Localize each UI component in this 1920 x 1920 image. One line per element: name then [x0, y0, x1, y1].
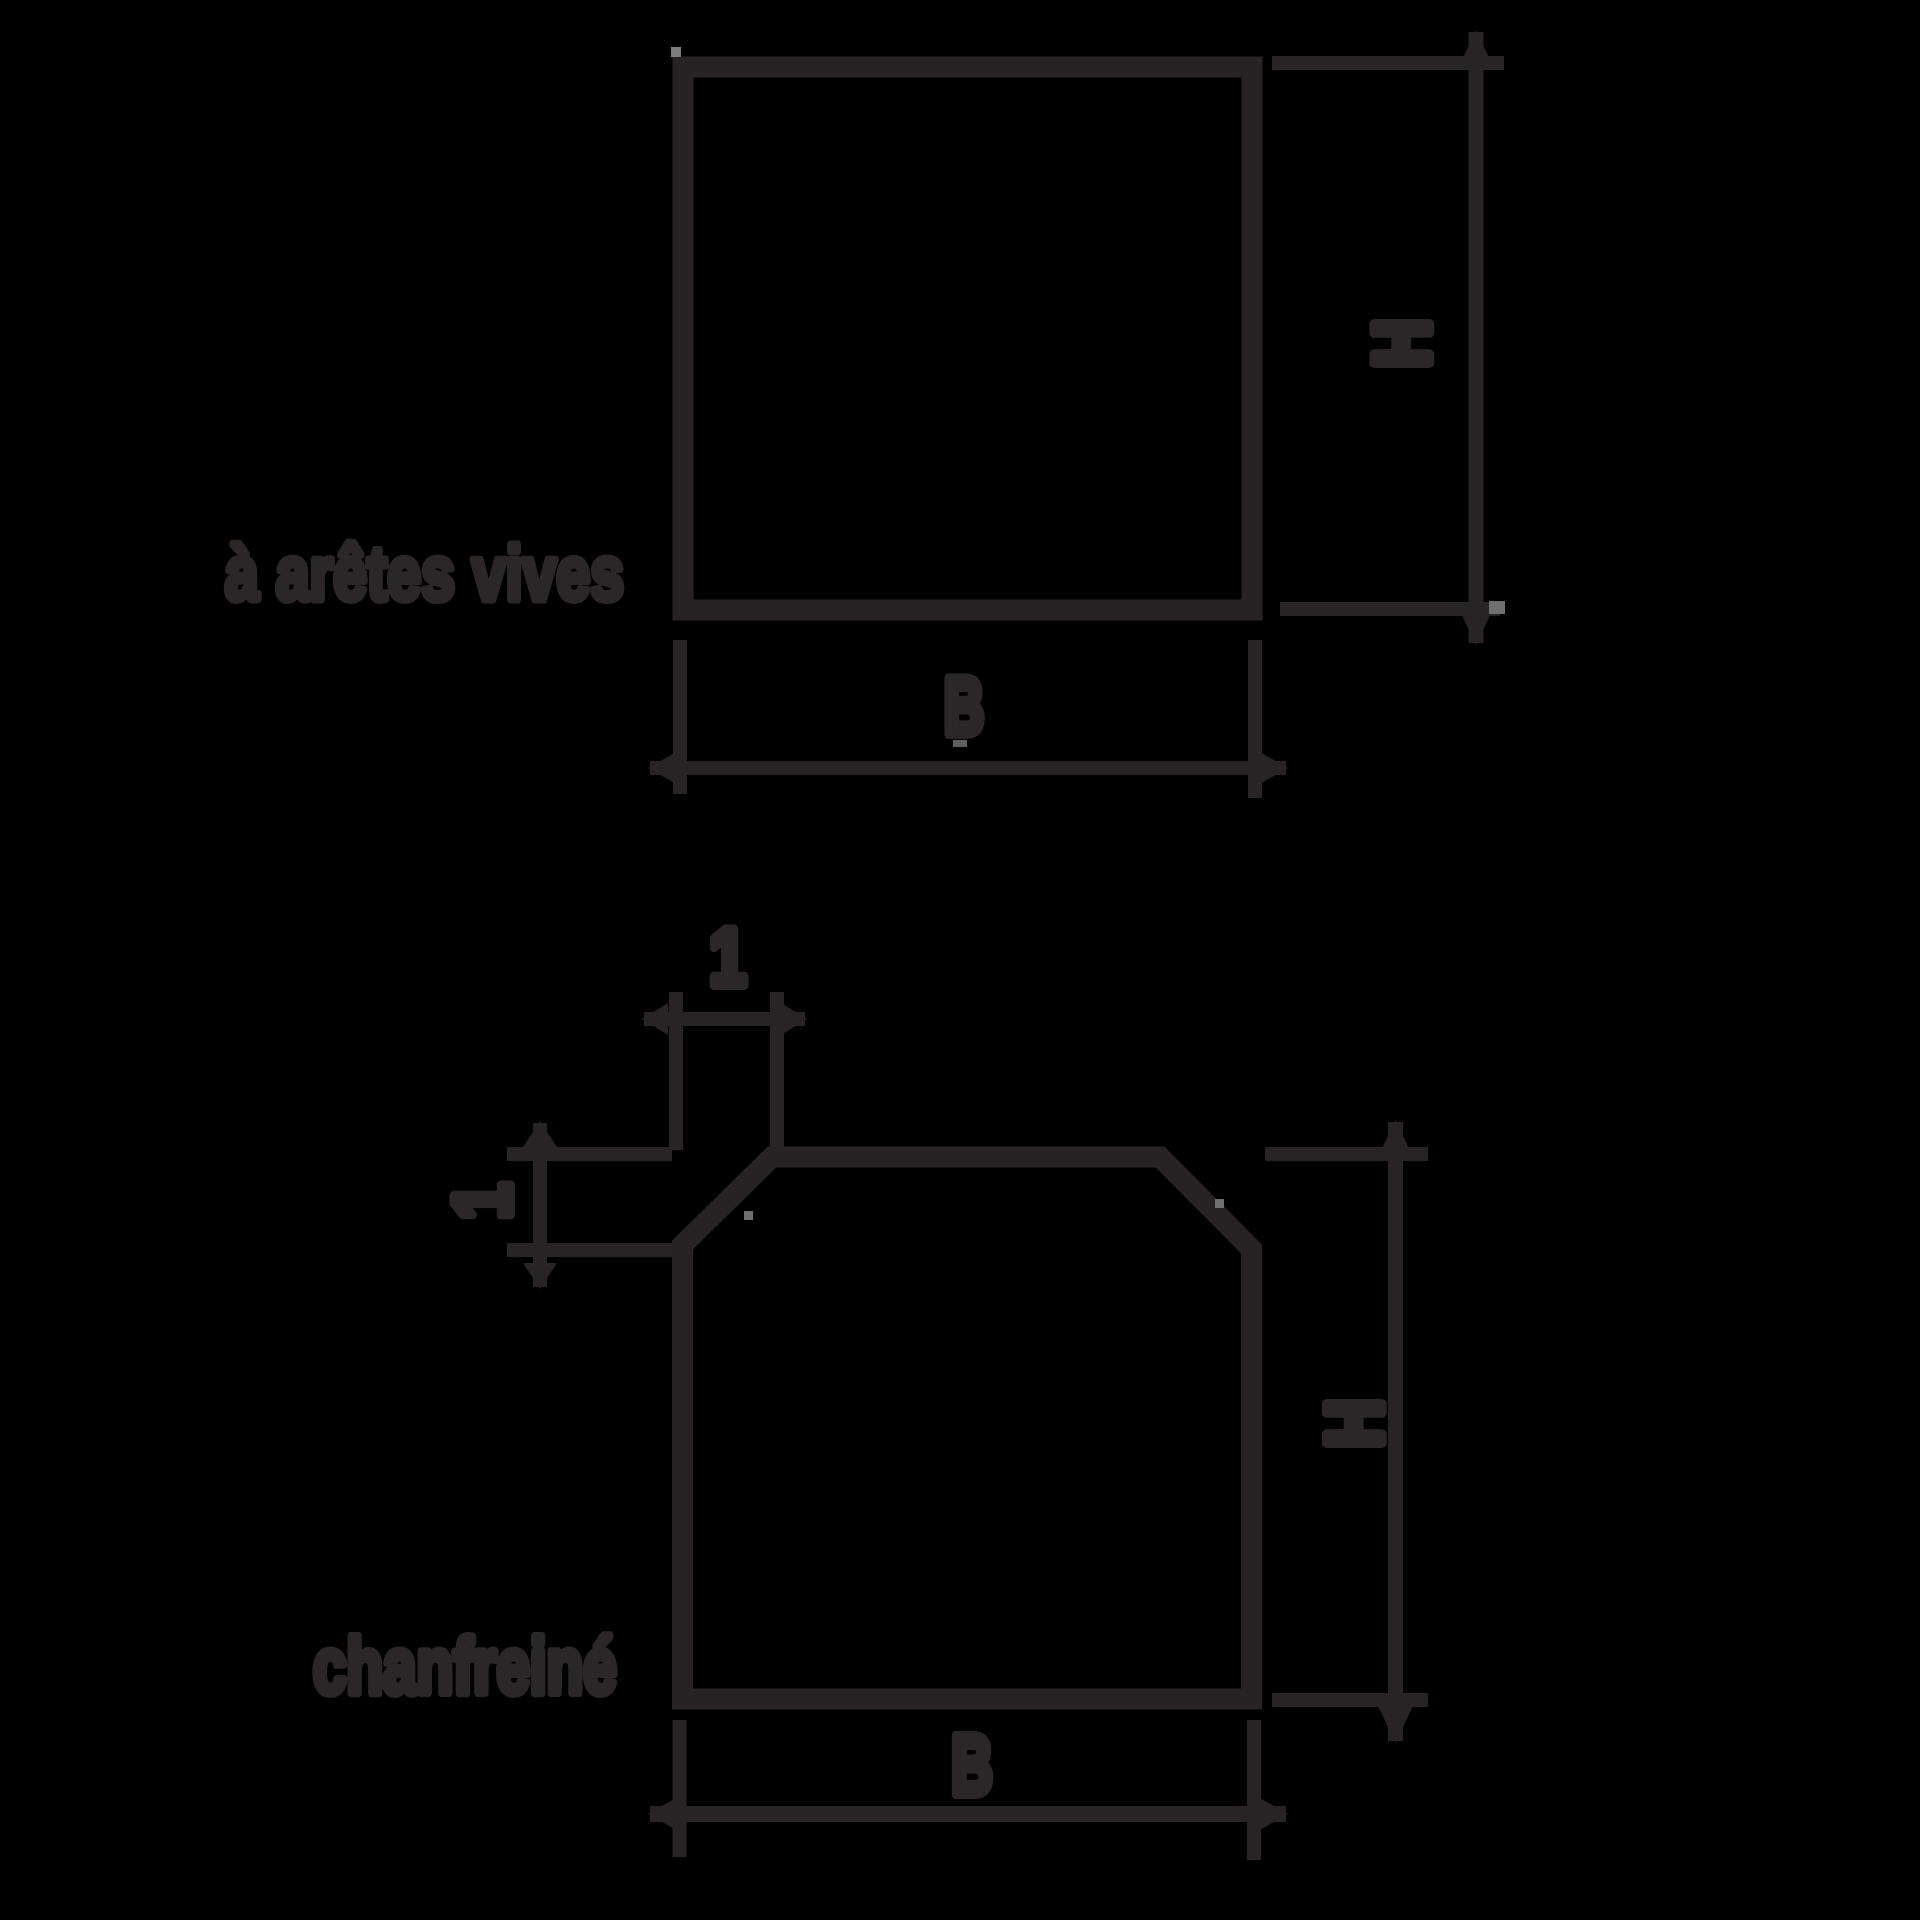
svg-text:B: B: [944, 660, 984, 751]
svg-text:chanfreiné: chanfreiné: [313, 1621, 617, 1710]
svg-text:H: H: [1357, 319, 1446, 368]
svg-text:B: B: [951, 1719, 992, 1813]
svg-text:1: 1: [437, 1183, 528, 1220]
svg-text:à arêtes vives: à arêtes vives: [225, 530, 624, 617]
svg-text:1: 1: [710, 912, 747, 1003]
svg-text:H: H: [1310, 1399, 1399, 1448]
